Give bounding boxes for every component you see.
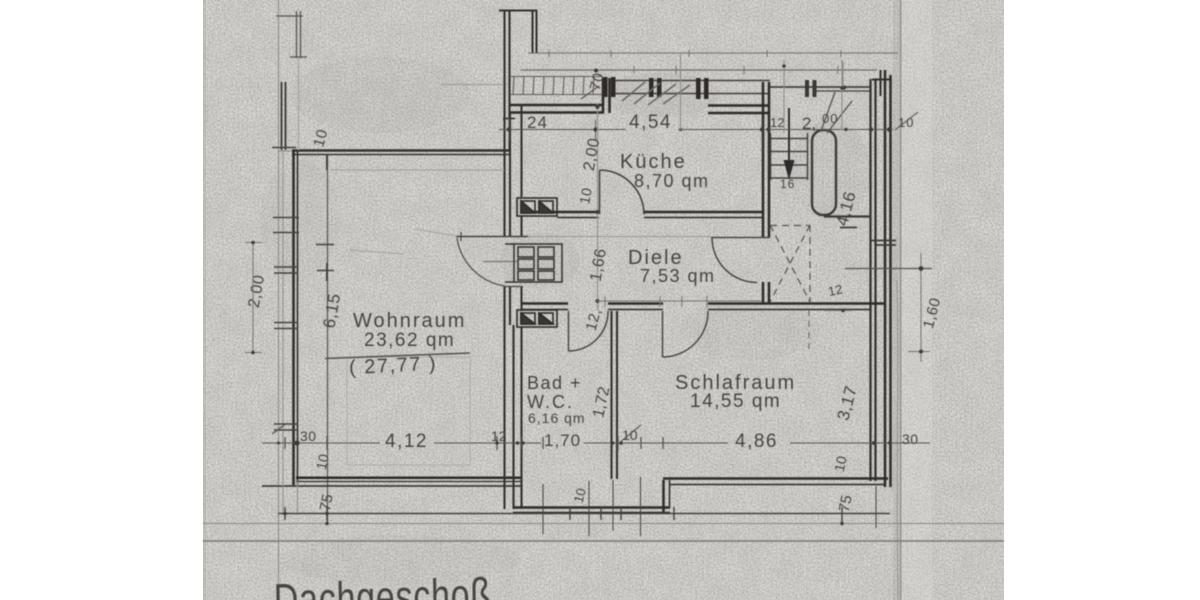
svg-text:Bad +: Bad + (527, 373, 582, 393)
svg-text:10: 10 (576, 186, 595, 205)
svg-text:Wohnraum: Wohnraum (353, 310, 466, 332)
svg-text:75: 75 (317, 493, 337, 513)
svg-text:14,55 qm: 14,55 qm (690, 391, 781, 412)
svg-text:2,: 2, (802, 114, 816, 133)
svg-text:12: 12 (491, 428, 507, 444)
svg-text:4,12: 4,12 (385, 431, 428, 452)
svg-text:30: 30 (902, 431, 919, 447)
svg-text:8,70 qm: 8,70 qm (634, 171, 710, 191)
svg-text:30: 30 (300, 428, 317, 444)
svg-text:23,62 qm: 23,62 qm (364, 330, 455, 351)
svg-text:75: 75 (836, 494, 856, 514)
svg-text:1,70: 1,70 (544, 431, 581, 450)
svg-text:00: 00 (822, 111, 838, 126)
svg-text:6,16 qm: 6,16 qm (528, 410, 586, 426)
svg-text:12: 12 (770, 115, 784, 130)
svg-text:4,86: 4,86 (735, 431, 778, 452)
svg-text:16: 16 (780, 177, 795, 191)
svg-text:Küche: Küche (620, 151, 687, 173)
svg-text:W.C.: W.C. (527, 392, 574, 412)
svg-text:Dachgeschoß: Dachgeschoß (273, 568, 492, 600)
svg-text:4,54: 4,54 (629, 112, 672, 133)
svg-text:12: 12 (827, 281, 844, 299)
svg-text:7,53 qm: 7,53 qm (640, 266, 716, 286)
svg-text:24: 24 (527, 113, 548, 132)
